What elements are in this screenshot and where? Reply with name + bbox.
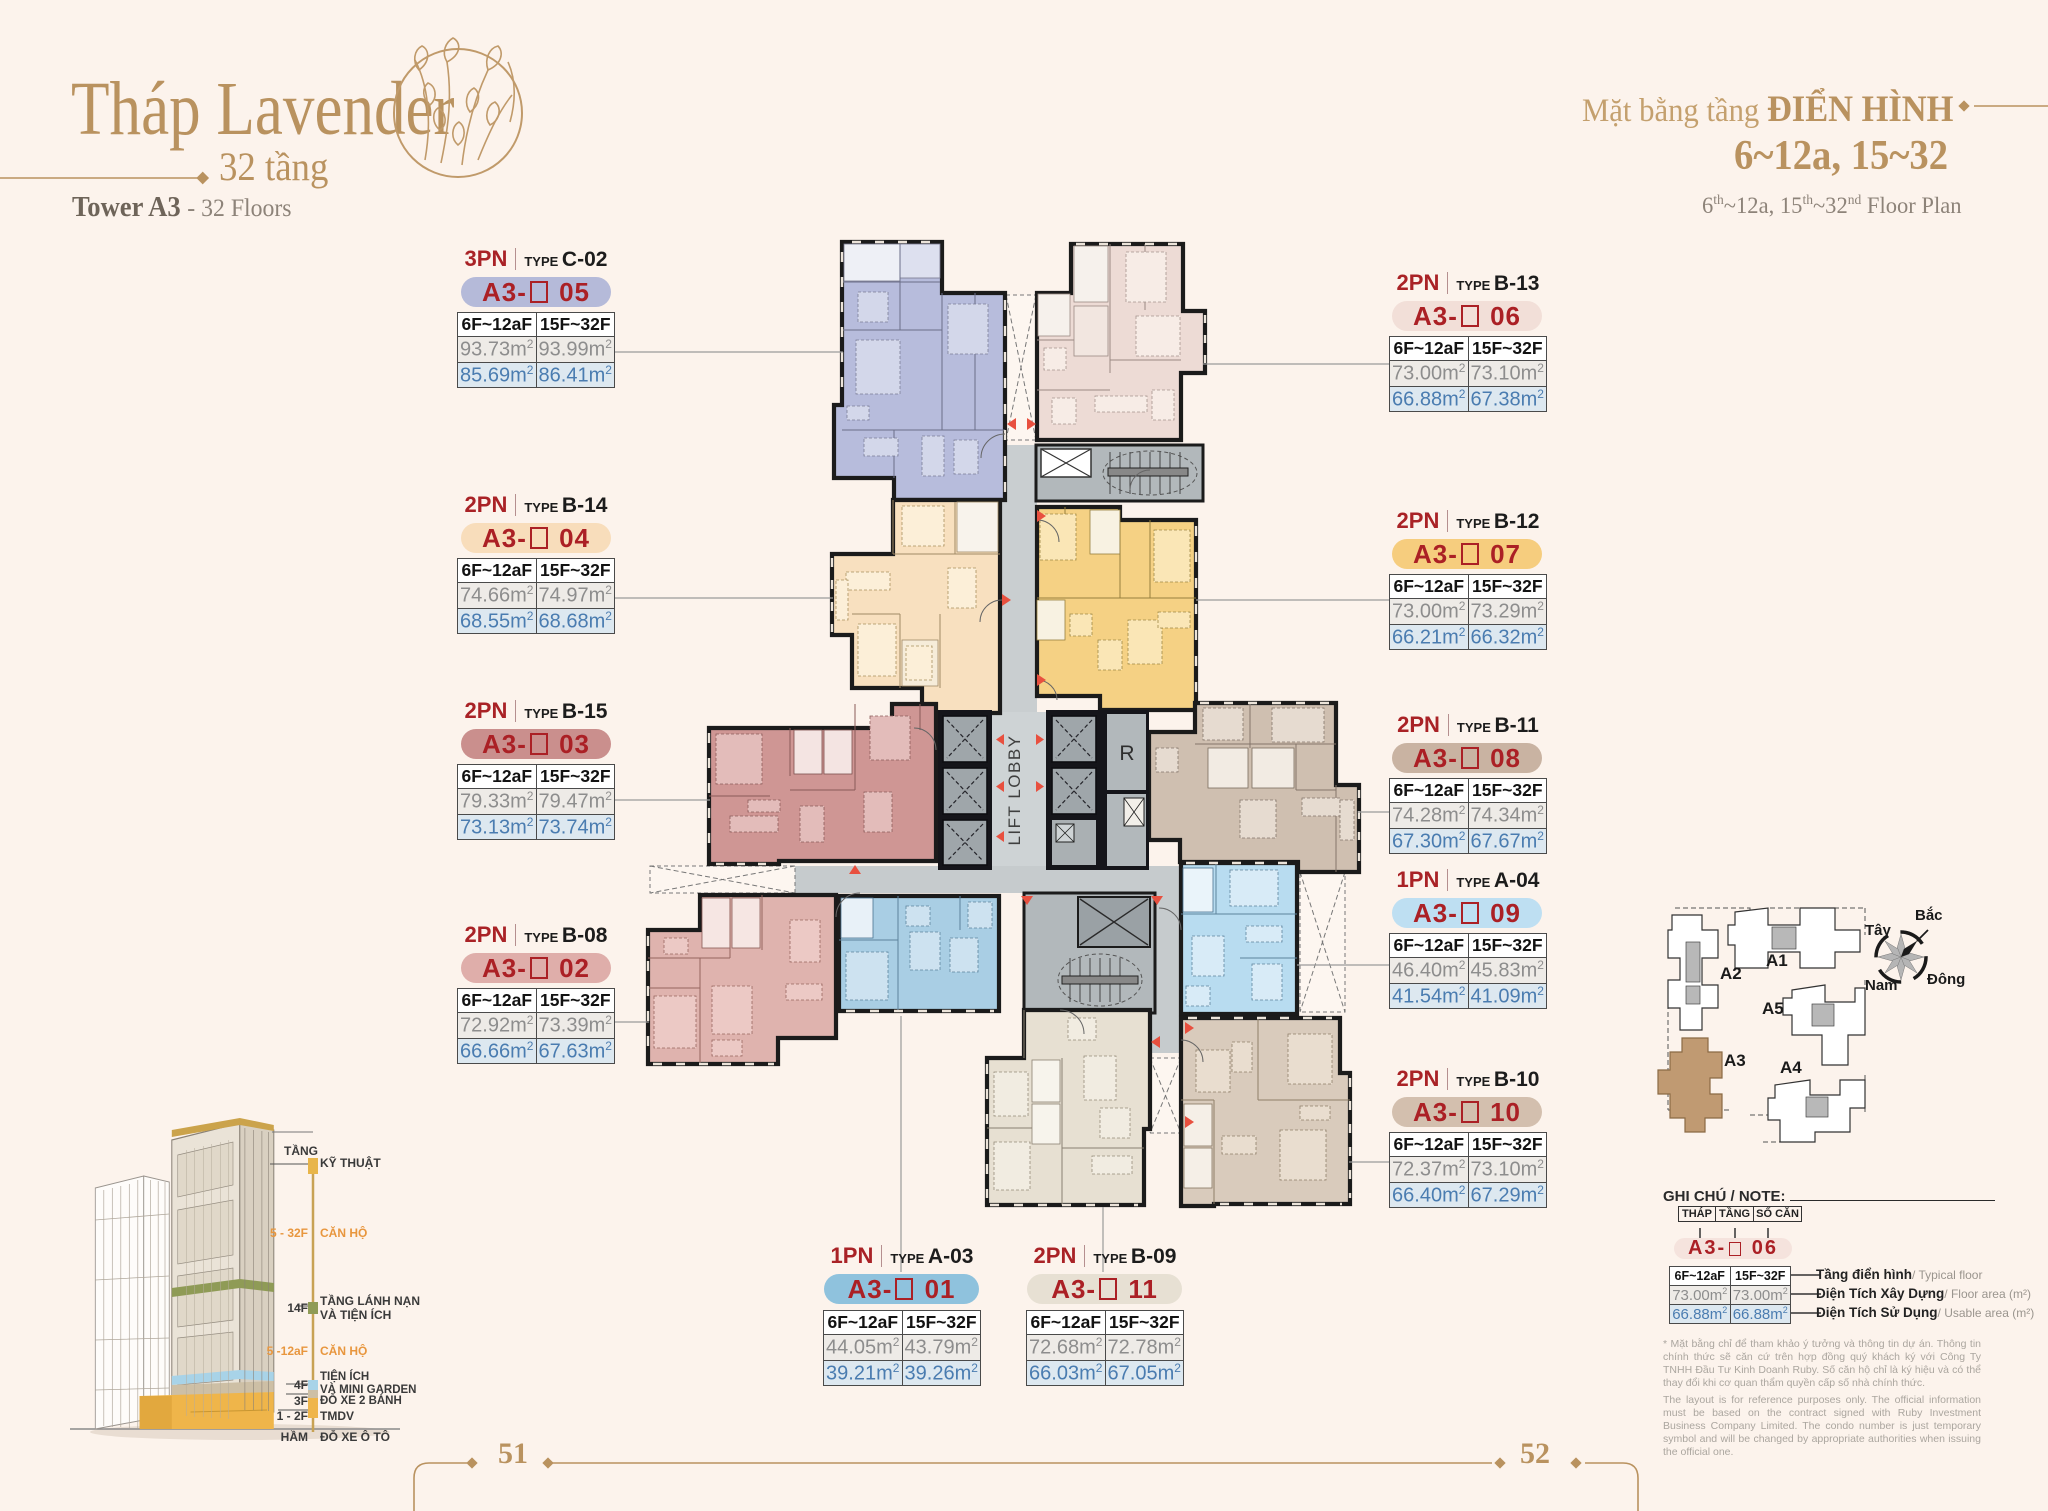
- svg-text:Đông: Đông: [1927, 971, 1965, 988]
- svg-text:A3: A3: [1724, 1051, 1746, 1070]
- svg-text:Bắc: Bắc: [1915, 906, 1943, 924]
- svg-text:A4: A4: [1780, 1058, 1802, 1077]
- svg-text:Tây: Tây: [1865, 922, 1892, 939]
- svg-text:Nam: Nam: [1865, 977, 1898, 994]
- svg-text:A5: A5: [1762, 999, 1784, 1018]
- svg-text:A2: A2: [1720, 964, 1742, 983]
- svg-text:A1: A1: [1766, 951, 1788, 970]
